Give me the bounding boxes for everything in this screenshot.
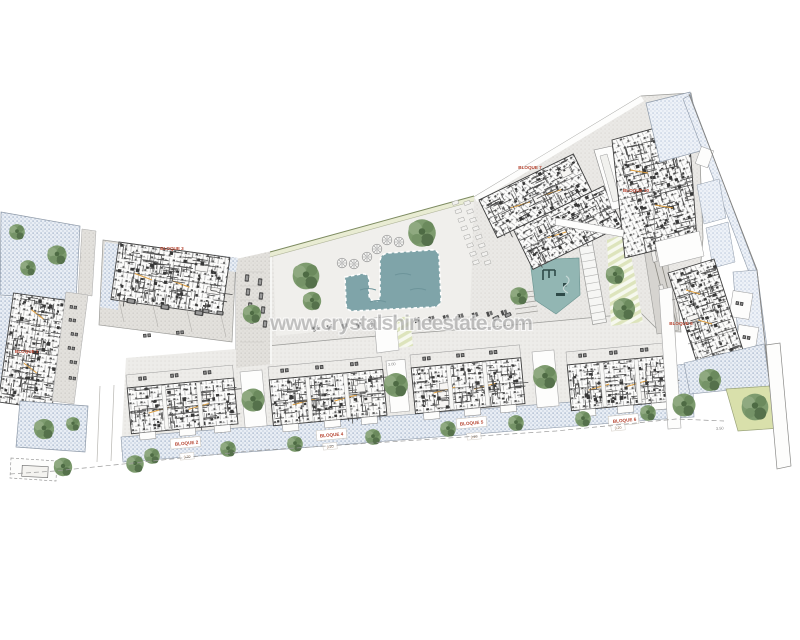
svg-text:3.00: 3.00	[388, 361, 397, 367]
svg-text:3.50: 3.50	[716, 425, 725, 431]
svg-text:3.20: 3.20	[614, 426, 621, 431]
svg-text:3.20: 3.20	[470, 435, 477, 440]
svg-text:BLOQUE 1: BLOQUE 1	[15, 349, 39, 354]
svg-text:BLOQUE 8: BLOQUE 8	[669, 321, 693, 326]
svg-text:www.crystalshineestate.com: www.crystalshineestate.com	[269, 311, 533, 335]
svg-text:BLOQUE 10: BLOQUE 10	[623, 188, 649, 193]
svg-text:BLOQUE 3: BLOQUE 3	[160, 246, 184, 251]
svg-text:BLOQUE 7: BLOQUE 7	[518, 165, 542, 170]
